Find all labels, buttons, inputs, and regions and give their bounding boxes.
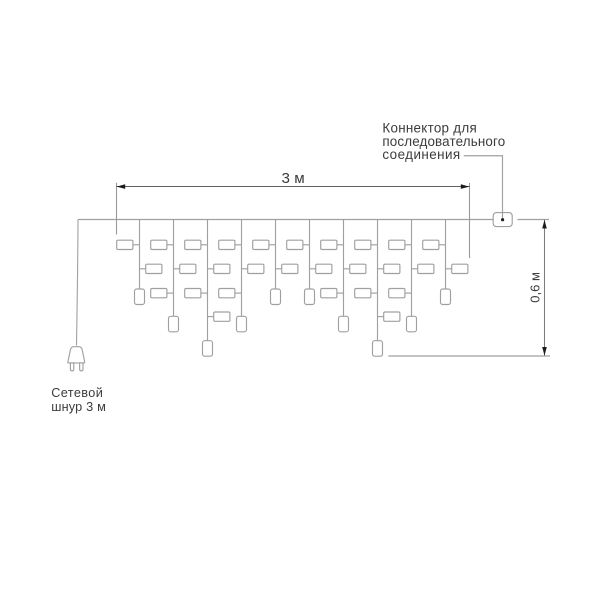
svg-text:0,6 м: 0,6 м	[527, 272, 542, 303]
svg-text:Сетевой: Сетевой	[51, 386, 103, 400]
svg-text:шнур 3 м: шнур 3 м	[51, 400, 106, 414]
svg-text:3 м: 3 м	[282, 170, 305, 187]
svg-text:соединения: соединения	[382, 147, 460, 162]
